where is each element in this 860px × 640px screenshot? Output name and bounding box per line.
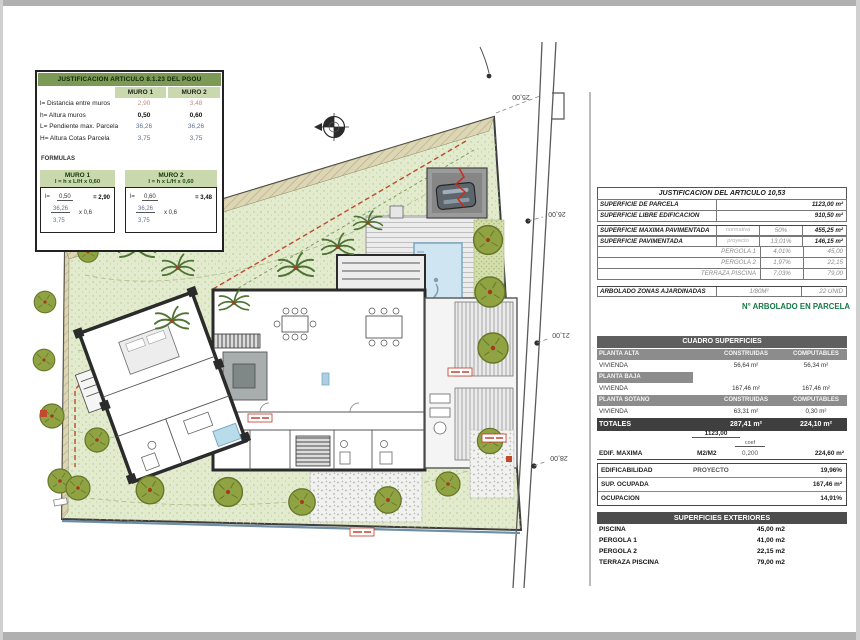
table-row: OCUPACION 14,91%: [598, 492, 846, 505]
drawing-sheet: { "muros": { "title": "JUSTIFICACION ART…: [0, 0, 860, 640]
table-row: L= Pendiente max. Parcela 36,26 36,26: [37, 121, 222, 133]
muro2-value: 3,48: [170, 98, 222, 110]
table-row: PISCINA 45,00 m2: [597, 524, 847, 535]
parcela-area-value: 1123,00: [692, 430, 740, 438]
sofa: [430, 408, 450, 417]
dining-table-2: [366, 316, 402, 338]
coef-label: coef: [735, 440, 765, 447]
tree-icon: [436, 472, 460, 496]
planta-baja-band: PLANTA BAJA: [597, 372, 693, 383]
muro1-formula-box: MURO 1 l = h x L/H x 0,60 l= 0,50 36,26 …: [40, 170, 115, 233]
formulas-label: FORMULAS: [41, 156, 75, 162]
formula-rule: l = h x L/H x 0,60: [40, 179, 115, 185]
wc-fixture: [322, 373, 329, 385]
table-row: l= Distancia entre muros 2,90 3,48: [37, 98, 222, 110]
muros-table-title: JUSTIFICACION ARTICULO 8.1.23 DEL PGOU: [38, 73, 221, 86]
stairs: [214, 334, 260, 348]
muro2-value: 36,26: [170, 121, 222, 133]
formula-box-title: MURO 2: [125, 172, 217, 179]
dim-label: 28,00: [550, 454, 568, 461]
row-label: h= Altura muros: [37, 110, 118, 122]
formula-rule: l = h x L/H x 0,60: [125, 179, 217, 185]
muro1-value: 0,50: [118, 110, 170, 122]
compass-icon: [314, 113, 349, 141]
formula-box-title: MURO 1: [40, 172, 115, 179]
dim-label: 25,00: [512, 93, 530, 100]
row-label: H= Altura Cotas Parcela: [37, 133, 118, 145]
bath-fixture: [380, 452, 392, 464]
tree-icon: [478, 333, 508, 363]
sofa: [430, 394, 450, 403]
muro2-value: 3,75: [170, 133, 222, 145]
table-row: VIVIENDA 167,46 m² 167,46 m²: [597, 383, 847, 394]
kitchen-island: [233, 364, 255, 388]
frame-right: [856, 0, 860, 640]
planta-alta-band: PLANTA ALTA CONSTRUIDAS COMPUTABLES: [597, 349, 847, 360]
muro1-value: 36,26: [118, 121, 170, 133]
arbolado-note: N° ARBOLADO EN PARCELA: [700, 302, 850, 311]
planter-box: [390, 206, 403, 218]
driveway: [427, 168, 487, 218]
stairwell: [296, 436, 330, 466]
table-title: CUADRO SUPERFICIES: [597, 336, 847, 348]
tree-icon: [475, 277, 505, 307]
arbolado-row: ARBOLADO ZONAS AJARDINADAS 1/80M² 22 UNI…: [597, 286, 847, 298]
superficies-exteriores-table: SUPERFICIES EXTERIORES PISCINA 45,00 m2 …: [597, 512, 847, 568]
table-row: PERGOLA 1 41,00 m2: [597, 535, 847, 546]
tree-icon: [136, 476, 164, 504]
table-title: SUPERFICIES EXTERIORES: [597, 512, 847, 524]
bath-fixture: [381, 441, 388, 448]
tree-icon: [34, 291, 56, 313]
frame-left: [0, 0, 3, 640]
muros-justification-table: JUSTIFICACION ARTICULO 8.1.23 DEL PGOU M…: [35, 70, 224, 252]
frame-top: [0, 0, 860, 6]
muro1-value: 2,90: [118, 98, 170, 110]
table-title: JUSTIFICACION DEL ARTICULO 10,53: [597, 187, 847, 200]
table-row: PERGOLA 2 22,15 m2: [597, 546, 847, 557]
gravel-patio: [310, 472, 422, 522]
edif-maxima-row: EDIF. MAXIMA M2/M2 0,200 224,60 m²: [597, 449, 847, 460]
table-row: VIVIENDA 63,31 m² 0,30 m²: [597, 406, 847, 417]
table-row: H= Altura Cotas Parcela 3,75 3,75: [37, 133, 222, 145]
cuadro-superficies-table: CUADRO SUPERFICIES PLANTA ALTA CONSTRUID…: [597, 336, 847, 431]
bath-fixture: [341, 441, 348, 448]
table-row: SUPERFICIE DE PARCELA 1123,00 m²: [597, 199, 847, 211]
table-row: EDIFICABILIDAD PROYECTO 19,96%: [598, 464, 846, 478]
justificacion-articulo-table: JUSTIFICACION DEL ARTICULO 10,53 SUPERFI…: [597, 187, 847, 297]
dim-label: 21,00: [552, 331, 570, 338]
dining-table: [282, 316, 308, 332]
car-icon: [436, 182, 476, 210]
tree-icon: [66, 476, 90, 500]
planta-sotano-band: PLANTA SOTANO CONSTRUIDAS COMPUTABLES: [597, 395, 847, 406]
muro1-column-header: MURO 1: [115, 87, 167, 98]
tree-icon: [289, 489, 315, 515]
table-row: VIVIENDA 56,64 m² 56,34 m²: [597, 360, 847, 371]
table-row: SUPERFICIE PAVIMENTADA proyecto 13,01% 1…: [597, 236, 847, 248]
tree-icon: [474, 226, 503, 255]
bath-fixture: [340, 452, 350, 464]
resumen-box: EDIFICABILIDAD PROYECTO 19,96% SUP. OCUP…: [597, 463, 847, 506]
row-label: l= Distancia entre muros: [37, 98, 118, 110]
dim-label: 26,00: [548, 210, 566, 217]
table-row: h= Altura muros 0,50 0,60: [37, 110, 222, 122]
table-row: TERRAZA PISCINA 7,03% 79,00: [597, 268, 847, 280]
tree-icon: [214, 478, 243, 507]
street-bracket-mark: [552, 93, 564, 119]
muro1-value: 3,75: [118, 133, 170, 145]
outdoor-table: [434, 422, 446, 434]
tree-icon: [375, 487, 401, 513]
muro2-value: 0,60: [170, 110, 222, 122]
table-row: TERRAZA PISCINA 79,00 m2: [597, 557, 847, 568]
house-annex: [337, 255, 425, 291]
tree-icon: [33, 349, 55, 371]
frame-bottom: [0, 632, 860, 640]
muro2-column-header: MURO 2: [168, 87, 220, 98]
row-label: L= Pendiente max. Parcela: [37, 121, 118, 133]
table-row: PERGOLA 2 1,97% 22,15: [597, 257, 847, 269]
table-row: SUPERFICIE LIBRE EDIFICACION 910,50 m²: [597, 210, 847, 222]
table-row: SUP. OCUPADA 167,46 m²: [598, 478, 846, 492]
tree-icon: [85, 428, 109, 452]
muro2-formula-box: MURO 2 l = h x L/H x 0,60 l= 0,60 36,26 …: [125, 170, 217, 233]
table-row: PERGOLA 1 4,01% 45,00: [597, 246, 847, 258]
table-row: SUPERFICIE MAXIMA PAVIMENTADA normativa …: [597, 225, 847, 237]
